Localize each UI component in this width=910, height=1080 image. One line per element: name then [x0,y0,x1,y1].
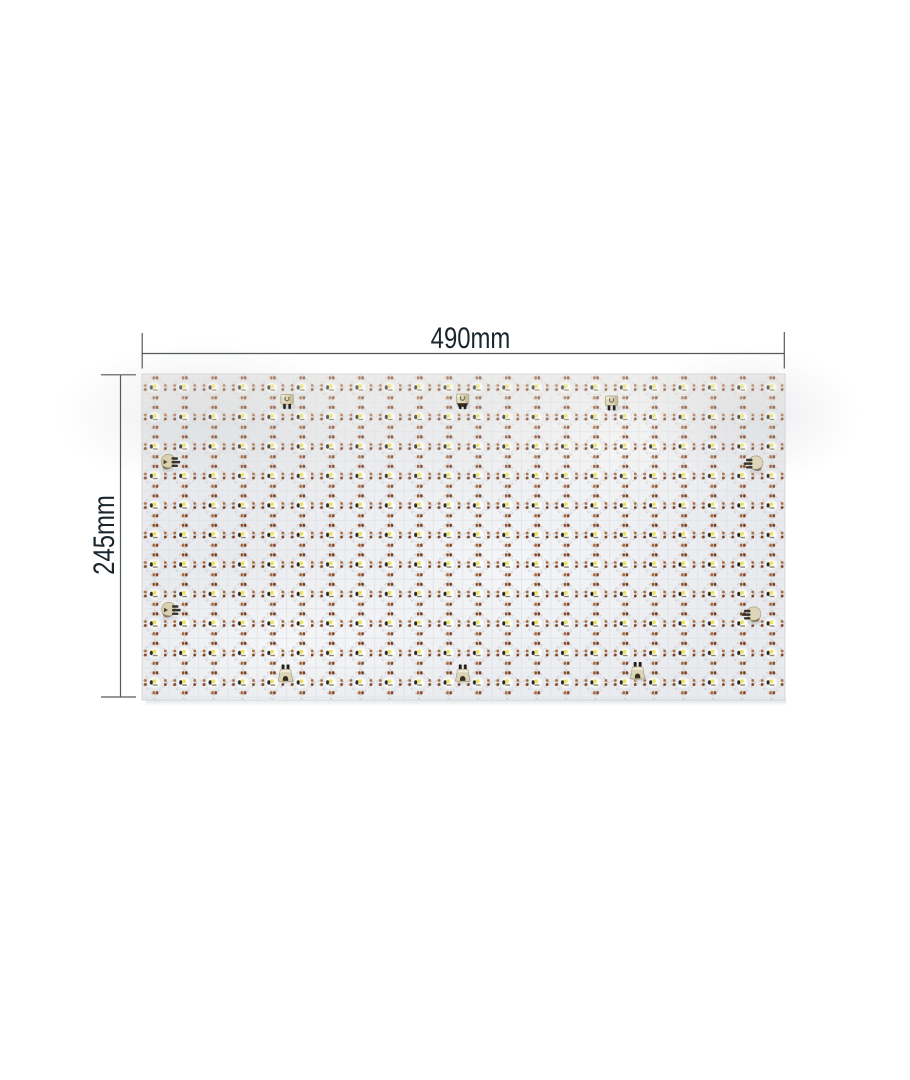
svg-text:245mm: 245mm [88,495,121,575]
svg-text:490mm: 490mm [431,322,511,355]
